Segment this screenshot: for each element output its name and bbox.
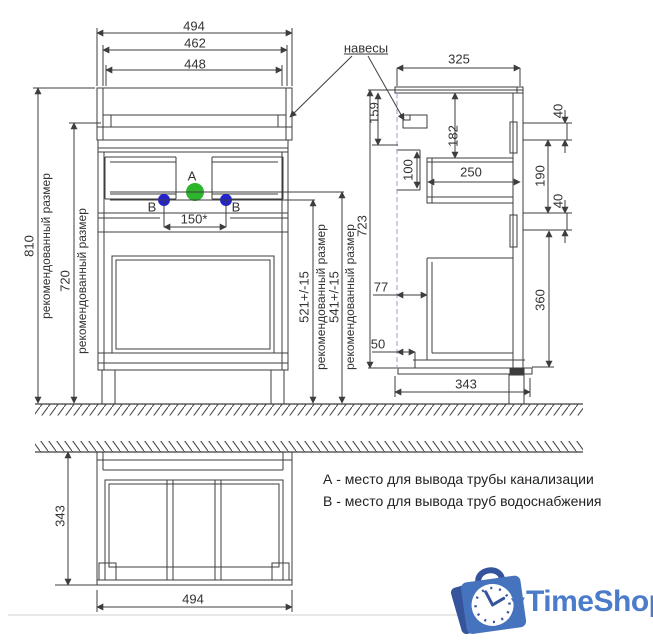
ground-hatch bbox=[35, 404, 583, 416]
dim-front-spacing: 150* bbox=[181, 212, 208, 227]
top-view-lines bbox=[97, 452, 292, 585]
dim-front-height-body: 720 bbox=[58, 270, 73, 292]
logo-bag-icon bbox=[448, 566, 529, 636]
dim-side-40-top: 40 bbox=[551, 104, 566, 118]
dim-front-width-top: 494 bbox=[183, 19, 205, 34]
legend-line-b: В - место для вывода труб водоснабжения bbox=[323, 493, 602, 509]
note-drain-height: рекомендованный размер bbox=[343, 224, 357, 370]
dim-side-100: 100 bbox=[401, 159, 416, 181]
dim-side-182: 182 bbox=[446, 125, 461, 147]
dim-side-door-offset: 77 bbox=[374, 280, 388, 295]
hinges-callout-label: навесы bbox=[344, 41, 388, 56]
dim-side-depth-top: 325 bbox=[448, 52, 470, 67]
dim-side-190: 190 bbox=[533, 165, 548, 187]
side-view-lines bbox=[395, 87, 567, 404]
dim-front-height-total: 810 bbox=[22, 235, 37, 257]
dim-top-depth: 343 bbox=[53, 505, 68, 527]
dim-side-plinth-offset: 50 bbox=[371, 337, 385, 352]
technical-drawing-page: 494 462 448 навесы 810 рекомендованный р… bbox=[0, 0, 653, 640]
dim-side-depth-bottom: 343 bbox=[455, 377, 477, 392]
point-a-label: А bbox=[188, 169, 197, 184]
dim-water-height: 521+/-15 bbox=[297, 271, 312, 323]
wall-hatch bbox=[35, 441, 583, 452]
note-height-body: рекомендованный размер bbox=[75, 208, 89, 354]
dim-side-door-height: 360 bbox=[533, 289, 548, 311]
hinges-callout-arrows bbox=[290, 56, 404, 120]
note-height-total: рекомендованный размер bbox=[39, 173, 53, 319]
dim-front-width-inner: 448 bbox=[184, 57, 206, 72]
dim-front-width-mid: 462 bbox=[184, 36, 206, 51]
point-b-right-label: В bbox=[232, 200, 241, 215]
dim-side-height: 723 bbox=[355, 215, 370, 237]
dim-side-40-bottom: 40 bbox=[551, 194, 566, 208]
legend-line-a: А - место для вывода трубы канализации bbox=[323, 471, 594, 487]
dim-top-width: 494 bbox=[182, 592, 204, 607]
dim-side-drawer-depth: 250 bbox=[460, 165, 482, 180]
front-view-lines bbox=[97, 88, 292, 404]
logo-text: TimeShop bbox=[526, 585, 653, 619]
point-b-left-label: В bbox=[148, 200, 157, 215]
dim-drain-height: 541+/-15 bbox=[327, 271, 342, 323]
dim-side-159: 159 bbox=[367, 102, 382, 124]
